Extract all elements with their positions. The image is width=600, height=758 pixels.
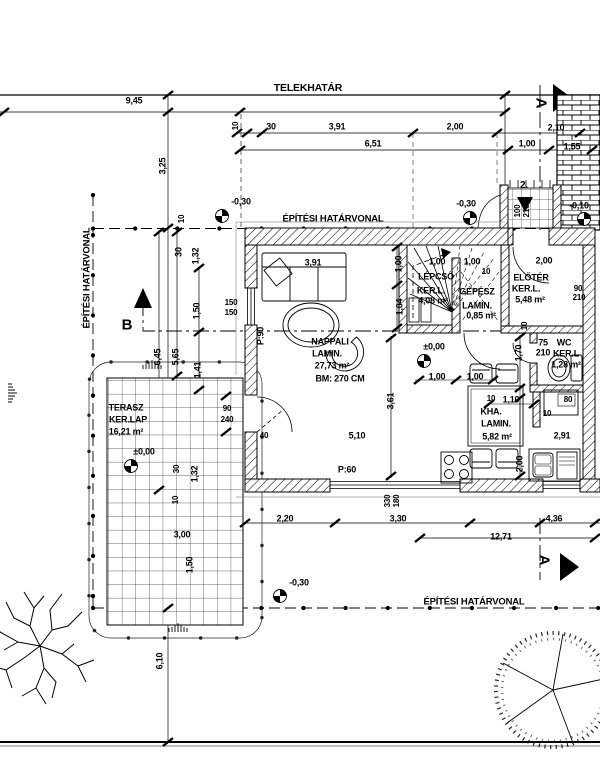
tree-deciduous: [0, 592, 94, 704]
wc-door: [513, 343, 533, 363]
gepesz-cross: [461, 272, 499, 322]
section-b-arrow: [134, 288, 152, 308]
kitchen-counter: [529, 449, 580, 481]
porch-tiles: [508, 188, 553, 228]
window-330-180: [330, 479, 460, 492]
dining-table: [468, 386, 523, 446]
sofa: [262, 253, 346, 301]
terrace: [8, 360, 262, 638]
plan-linework: [0, 0, 600, 758]
armchair: [322, 331, 366, 374]
toilet: [548, 355, 582, 381]
section-a-bottom-arrow: [560, 553, 579, 581]
terrace-tiles: [107, 378, 243, 625]
coffee-table: [283, 303, 339, 347]
floor-plan-sheet: TELEKHATÁR9,453,2510303,912,002,106,511,…: [0, 0, 600, 758]
window-150-150: [245, 288, 257, 325]
terrace-door: [245, 395, 292, 432]
brick-wall: [557, 95, 600, 230]
stove: [441, 452, 472, 483]
building-walls: [245, 185, 600, 492]
tree-conifer: [496, 633, 600, 747]
entrance-door: [513, 247, 549, 283]
entry-porch: [478, 180, 553, 228]
fridge: [544, 390, 578, 415]
